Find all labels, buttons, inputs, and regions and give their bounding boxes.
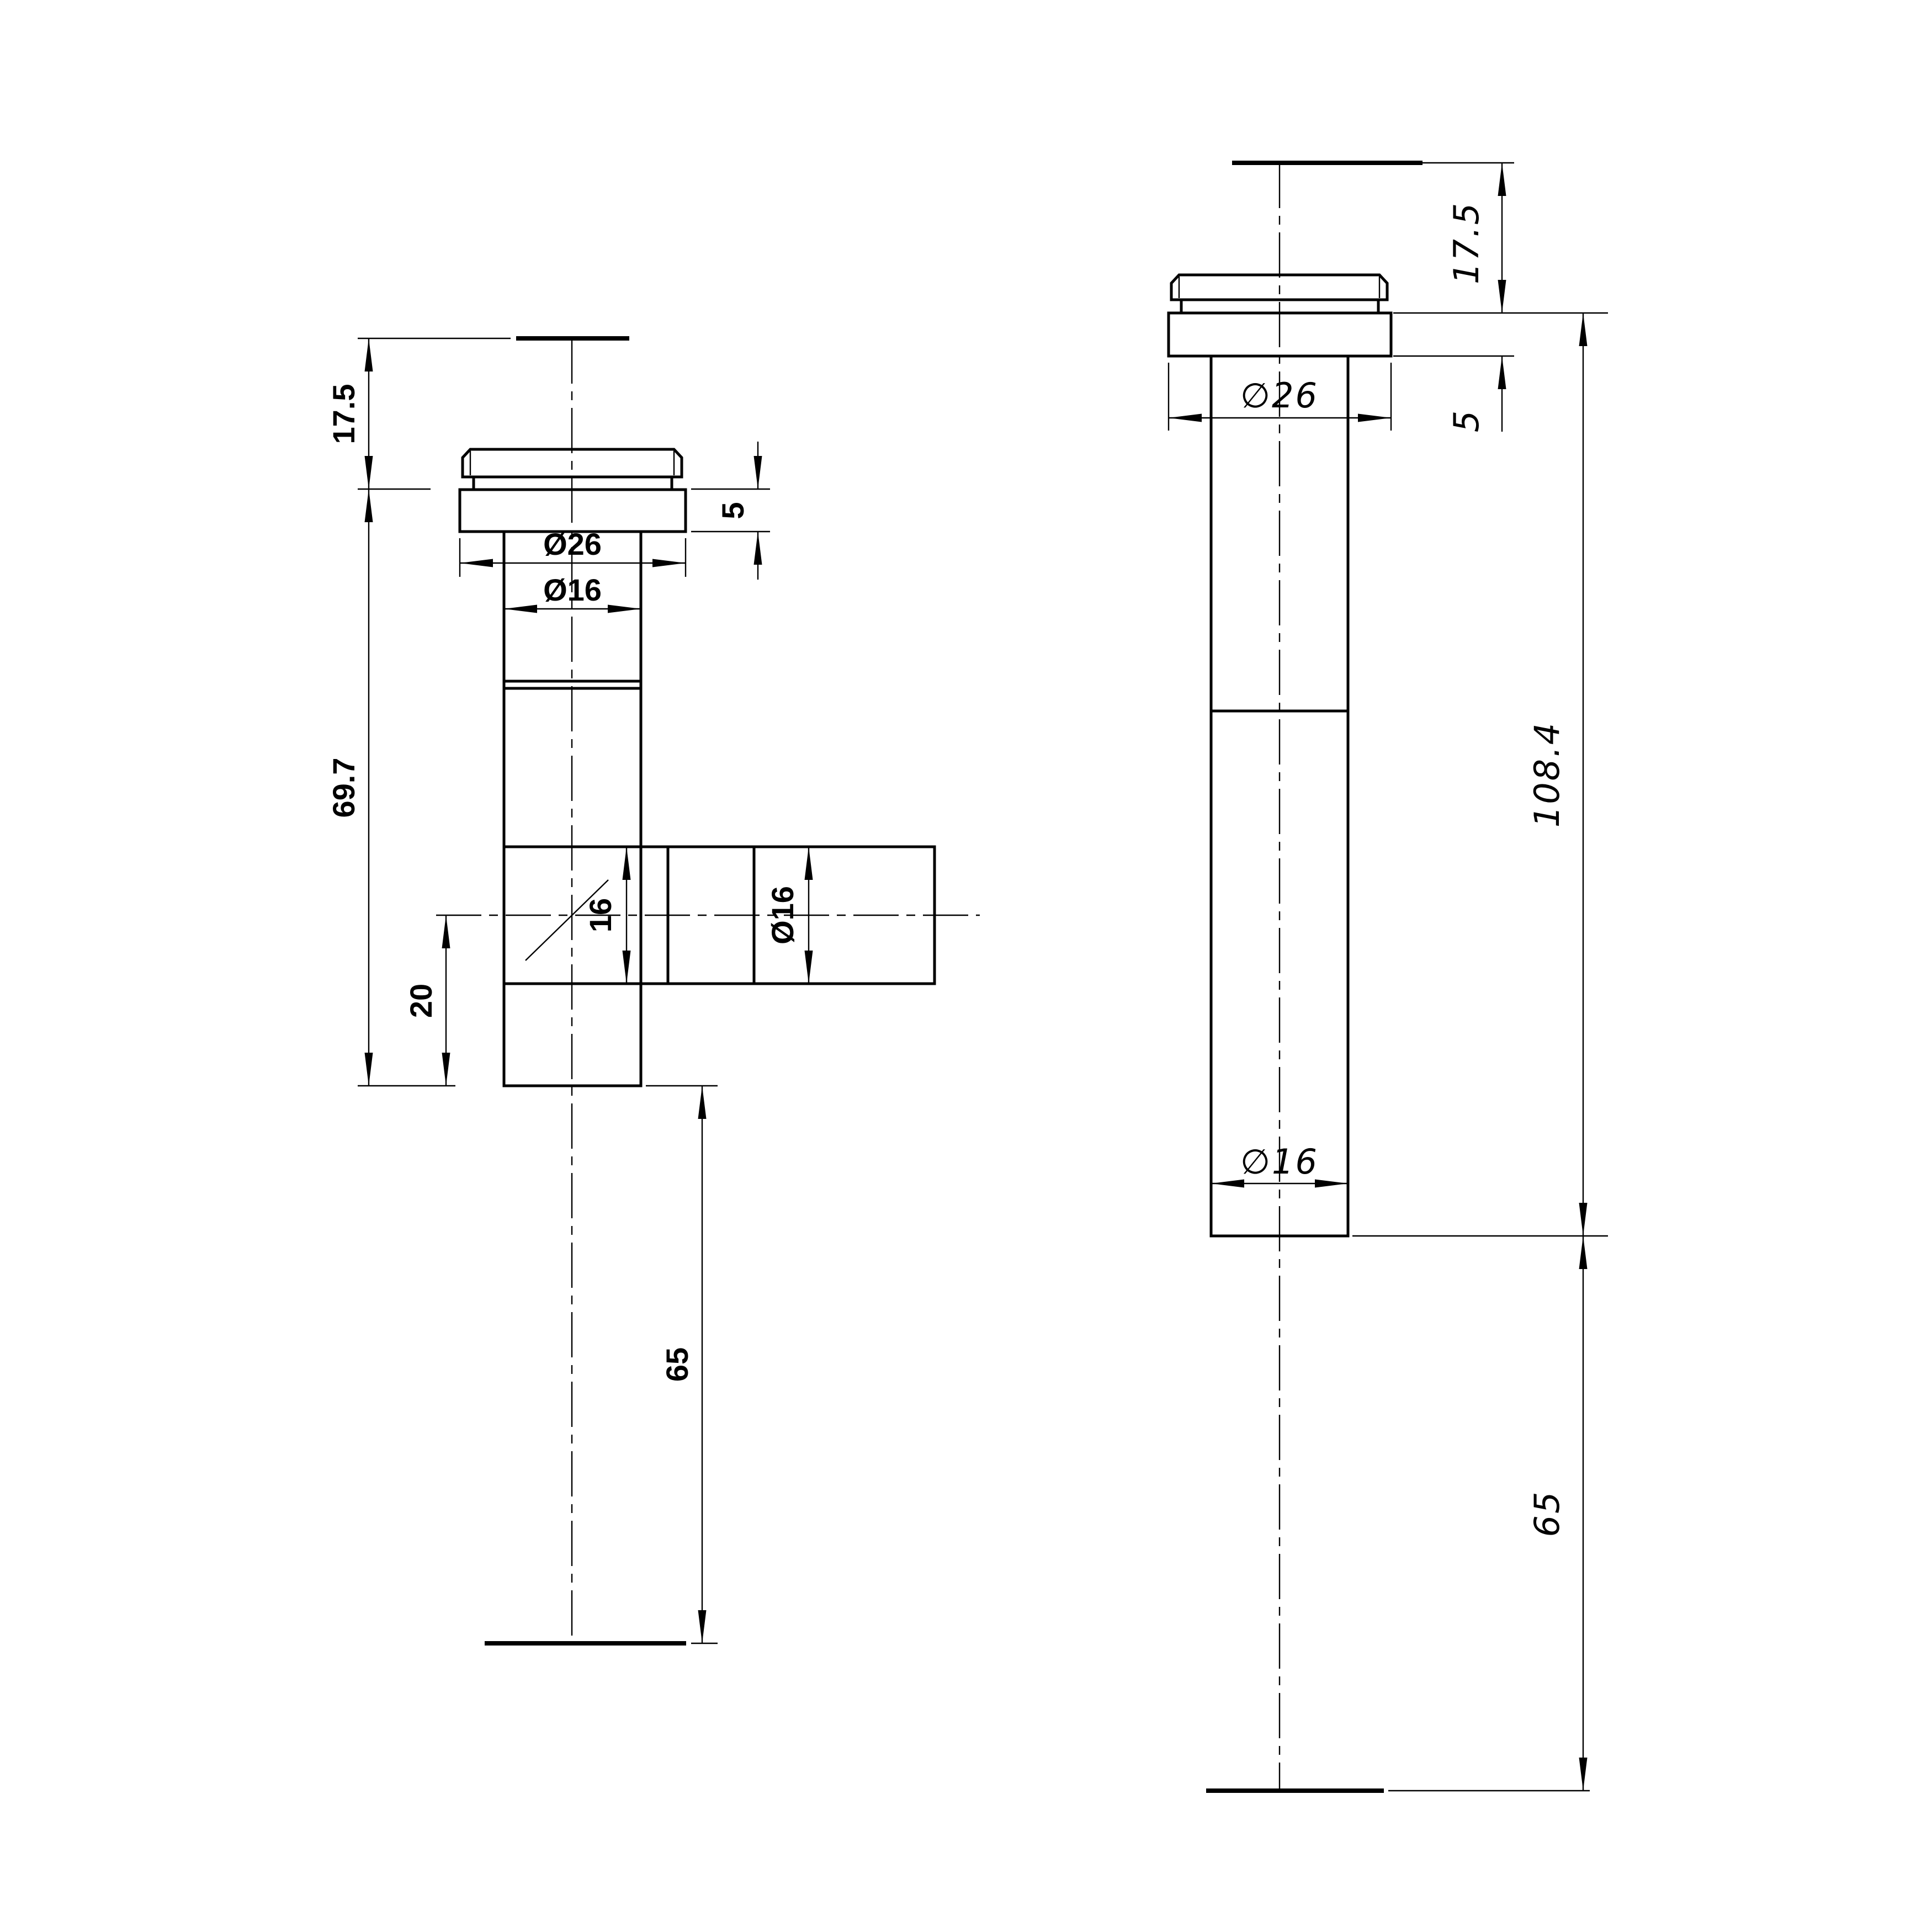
left-dim-label-thickness: 5 (715, 502, 750, 519)
left-flange-outline (460, 490, 686, 532)
left-dim-label-tube-dia: Ø16 (543, 572, 602, 607)
left-dim-label-tail: 65 (660, 1347, 694, 1382)
right-dim-label-flange-dia: ∅26 (1240, 375, 1319, 416)
left-dim-label-cap-height: 17.5 (326, 384, 361, 444)
right-dim-label-thickness: 5 (1446, 409, 1487, 432)
drawing-canvas: 17.5 69.7 20 16 Ø16 Ø26 Ø16 5 65 (0, 0, 1932, 1932)
left-dim-label-body-length: 69.7 (326, 758, 361, 818)
left-dim-label-branch-bore: 16 (583, 898, 618, 932)
left-dim-label-branch-offset: 20 (404, 984, 438, 1018)
left-collar-sides (474, 477, 672, 490)
right-dim-label-tail: 65 (1527, 1490, 1567, 1537)
left-dim-label-branch-dia: Ø16 (765, 886, 800, 944)
right-dim-label-tube-dia: ∅16 (1240, 1142, 1319, 1182)
right-view: ∅26 17.5 5 108.4 65 ∅16 (1169, 163, 1608, 1791)
right-dim-label-cap-height: 17.5 (1446, 201, 1487, 284)
left-dim-label-flange-dia: Ø26 (543, 527, 602, 561)
right-dim-label-overall-length: 108.4 (1527, 721, 1567, 828)
left-view: 17.5 69.7 20 16 Ø16 Ø26 Ø16 5 65 (326, 338, 980, 1643)
